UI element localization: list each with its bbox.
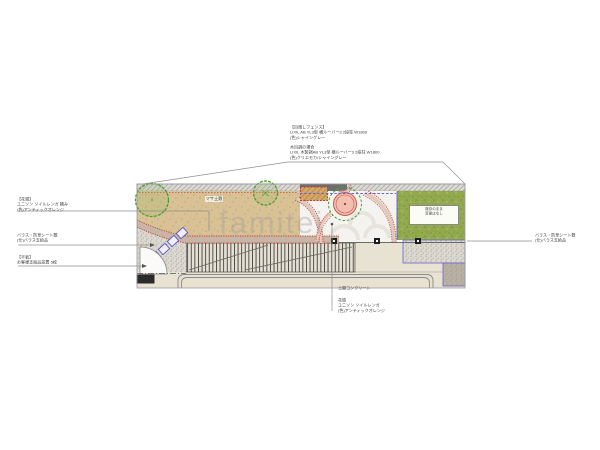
annotation-flowerbed-center: 花壇 ユニソン ソイルレンガ (色)アンティックオレンジ: [338, 298, 385, 314]
annotation-gravel-right-note: (仕)バラス支給品: [535, 238, 576, 243]
label-masa-soil: マサ土敷: [205, 196, 223, 202]
watermark: famitei: [219, 205, 324, 241]
annotation-gravel-left: バラス・防草シート敷 (仕)バラス支給品: [17, 233, 58, 244]
annotation-fence-alt-color: (色)クリエモカ/シャイングレー: [290, 156, 380, 161]
annotation-fence-alt: 木目調の場合 LIXIL 木製調AB YL3型 横ルーバー3 2段柱 W1800…: [290, 145, 380, 161]
garden-plan-page: famitei マサ土敷 既存のまま 変更はなし 【目隠しフェンス】 LIXIL…: [0, 0, 600, 450]
annotation-fence: 【目隠しフェンス】 LIXIL AB YL3型 横ルーバー3 2段柱 W1800…: [290, 125, 367, 141]
annotation-flowerbed-left: 【花壇】 ユニソン ソイルレンガ 積み (色)アンティックオレンジ: [17, 197, 68, 213]
tree-symbol-left: [136, 184, 169, 217]
annotation-slabs-spec: お客様支給品設置 5枚: [17, 260, 57, 265]
stairs: [187, 243, 356, 272]
lawn-note-box: 既存のまま 変更はなし: [409, 205, 459, 225]
lawn-note-line2: 変更はなし: [410, 212, 458, 217]
annotation-fence-color: (色)シャイングレー: [290, 136, 367, 141]
annotation-concrete-label: 土間コンクリート: [338, 286, 370, 291]
annotation-slabs: 【平板】 お客様支給品設置 5枚: [17, 255, 57, 266]
annotation-flowerbed-left-color: (色)アンティックオレンジ: [17, 208, 68, 213]
tree-symbol-right: [254, 181, 278, 205]
annotation-flowerbed-center-color: (色)アンティックオレンジ: [338, 309, 385, 314]
annotation-gravel-right: バラス・防草シート敷 (仕)バラス支給品: [535, 233, 576, 244]
annotation-gravel-left-note: (仕)バラス支給品: [17, 238, 58, 243]
annotation-concrete: 土間コンクリート: [338, 286, 370, 291]
